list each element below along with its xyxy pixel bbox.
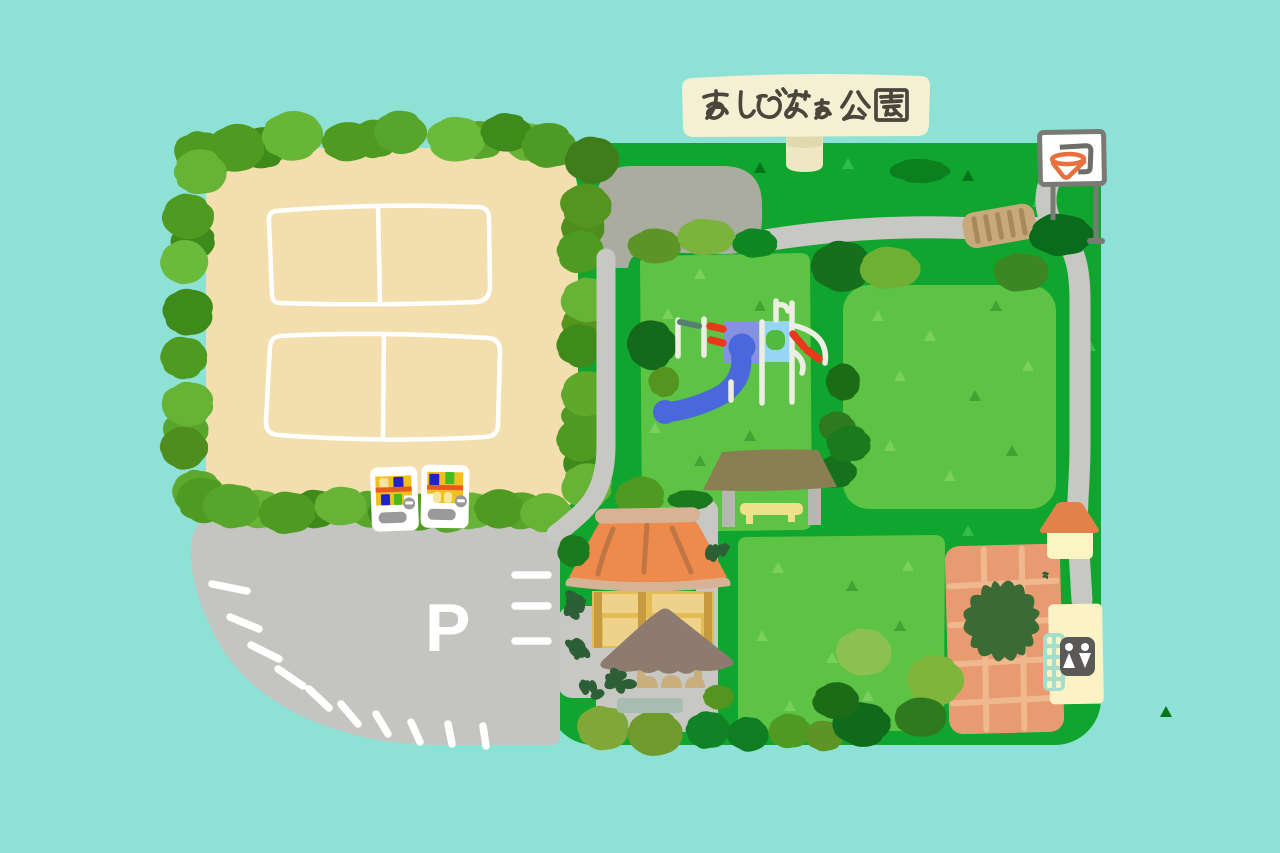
svg-text:P: P [425, 590, 470, 666]
